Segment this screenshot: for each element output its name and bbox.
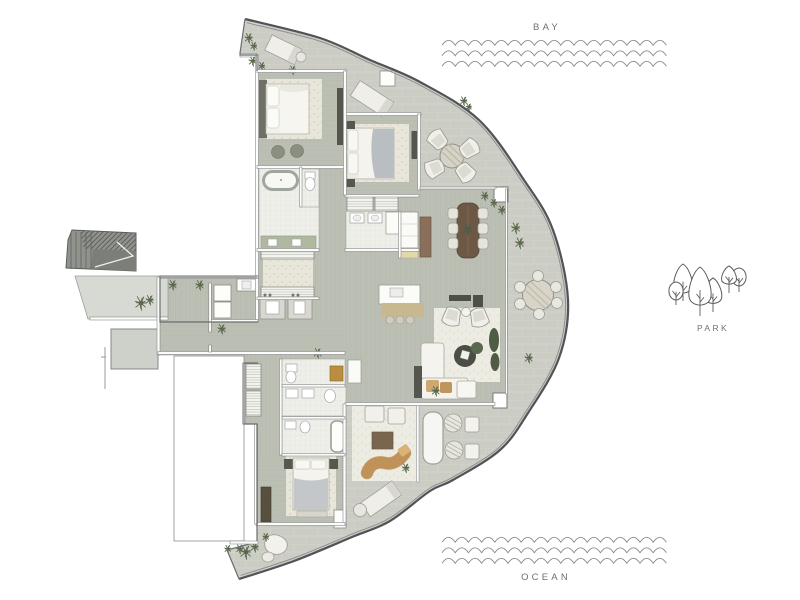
svg-text:OCEAN: OCEAN (521, 572, 571, 583)
svg-text:PARK: PARK (697, 323, 729, 333)
svg-text:BAY: BAY (533, 22, 561, 33)
